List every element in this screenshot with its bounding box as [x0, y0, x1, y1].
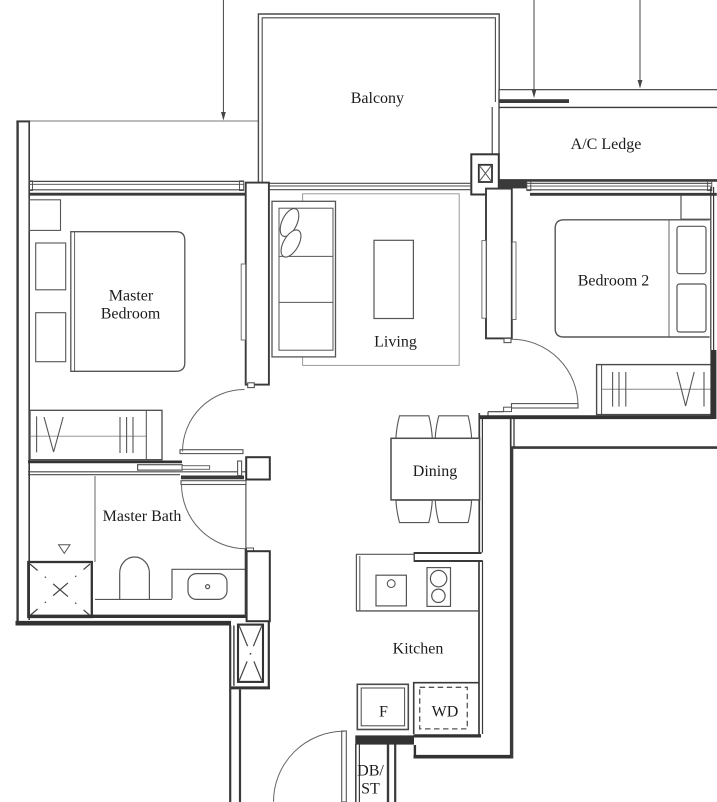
svg-text:DB/: DB/: [357, 763, 384, 780]
svg-text:ST: ST: [361, 781, 380, 798]
svg-text:Kitchen: Kitchen: [393, 641, 444, 658]
svg-text:Dining: Dining: [413, 463, 457, 480]
svg-text:Master: Master: [109, 288, 154, 305]
svg-text:Balcony: Balcony: [351, 90, 404, 107]
svg-text:A/C Ledge: A/C Ledge: [571, 136, 642, 153]
svg-text:Bedroom 2: Bedroom 2: [578, 273, 650, 290]
svg-text:WD: WD: [432, 704, 459, 721]
svg-text:F: F: [379, 704, 388, 721]
svg-text:Living: Living: [374, 334, 417, 351]
svg-text:Master Bath: Master Bath: [103, 508, 182, 525]
svg-text:Bedroom: Bedroom: [101, 306, 161, 323]
